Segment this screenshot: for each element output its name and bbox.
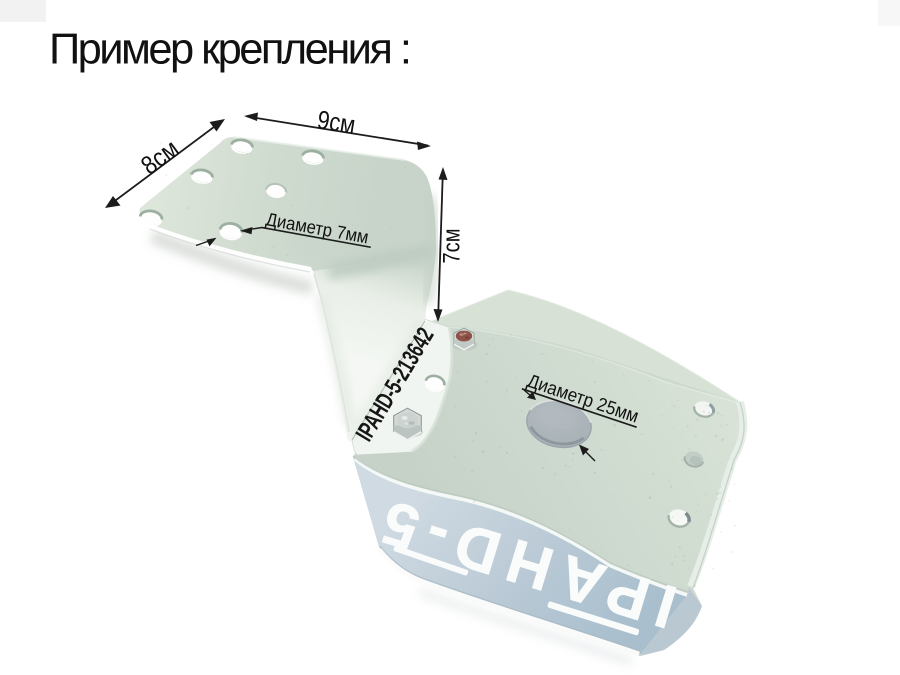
svg-text:7см: 7см: [439, 229, 466, 264]
svg-text:9см: 9см: [315, 104, 357, 140]
svg-text:Пример крепления :: Пример крепления :: [49, 26, 412, 74]
